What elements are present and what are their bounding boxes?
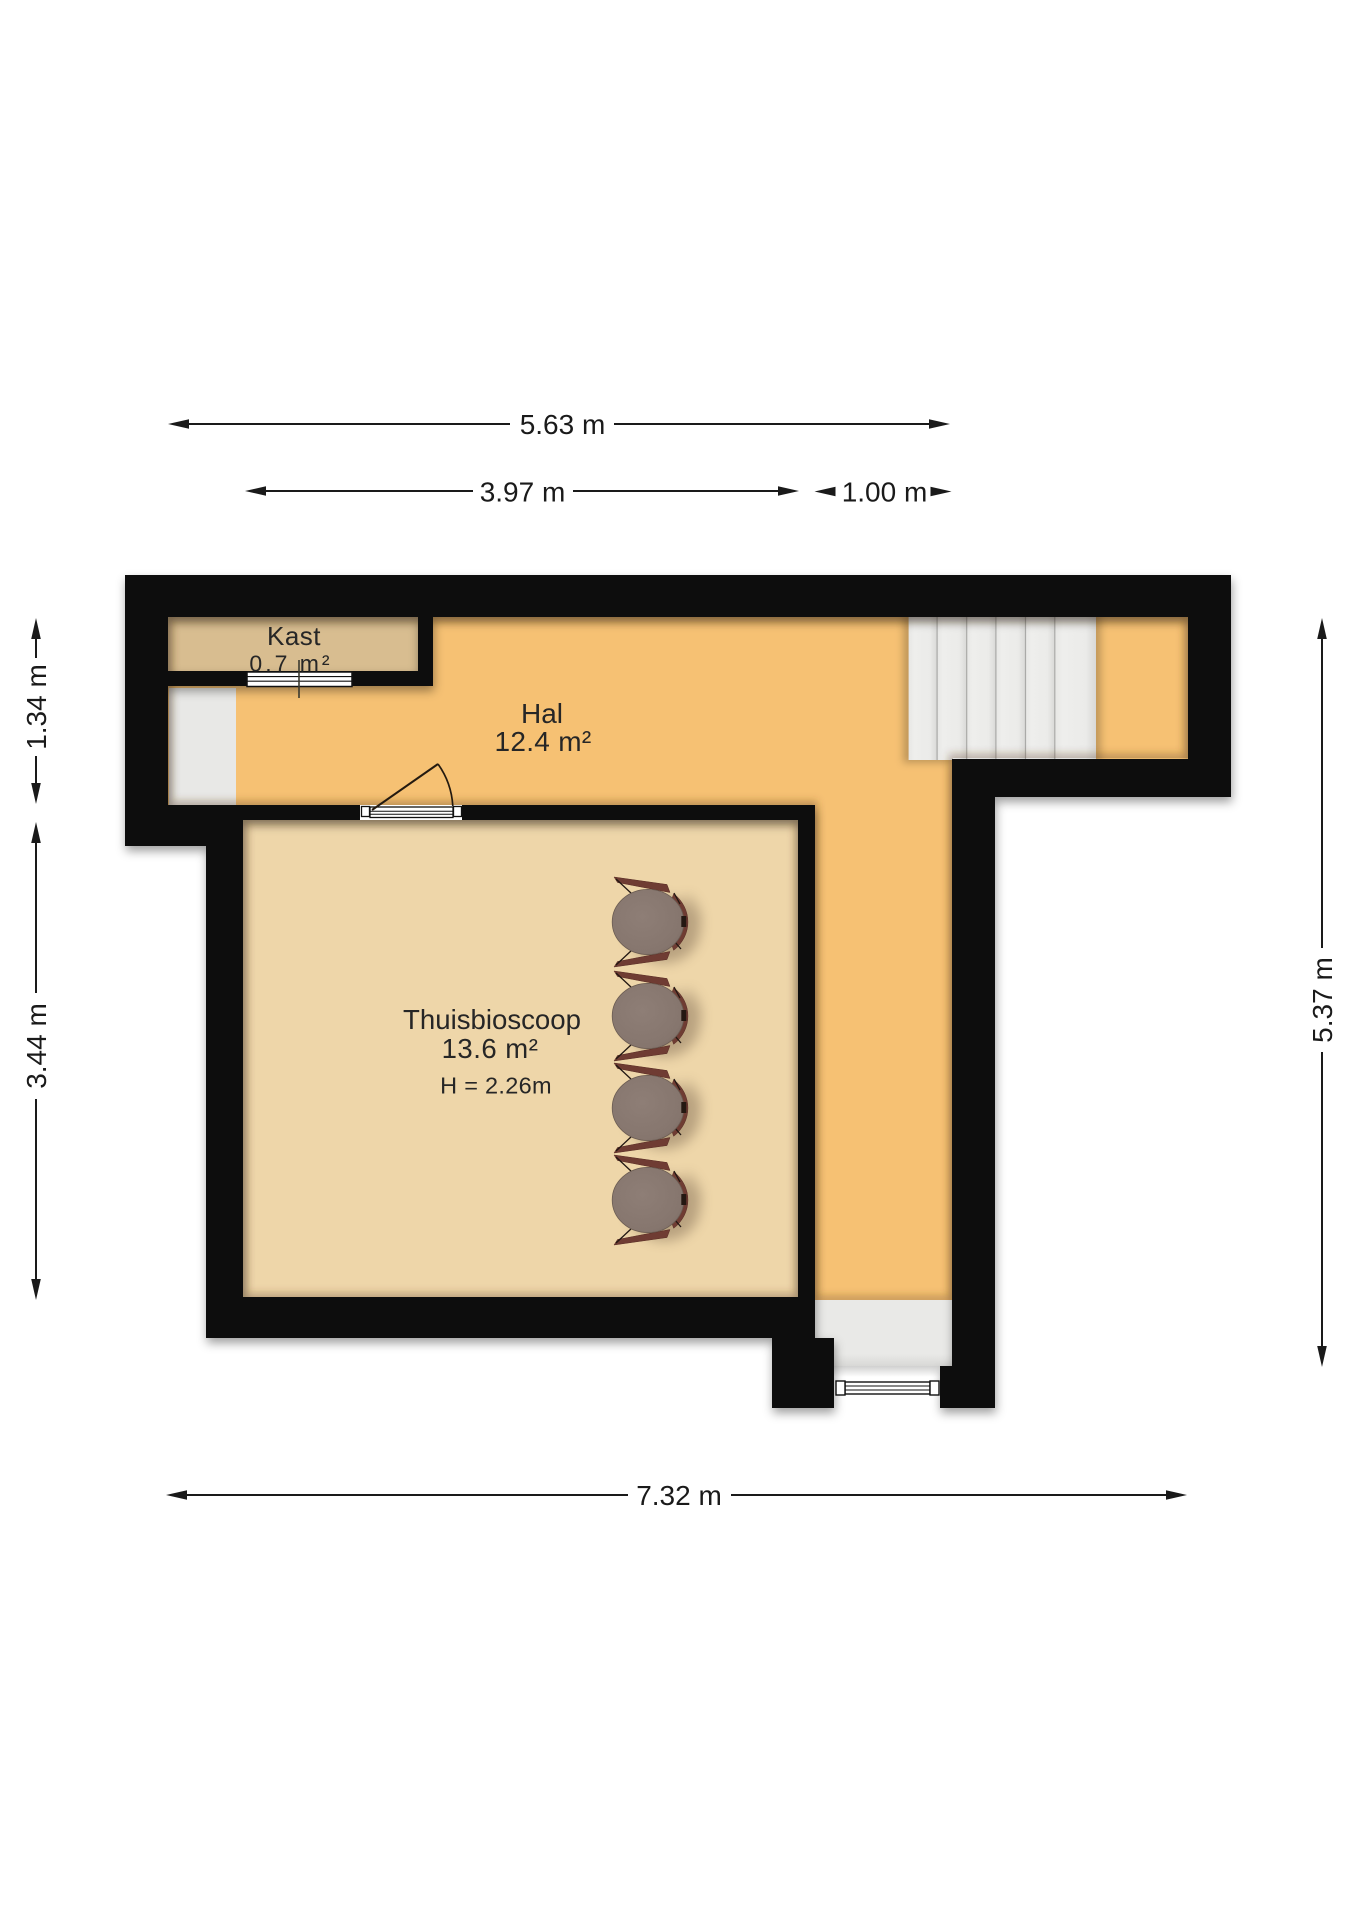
svg-text:1.00 m: 1.00 m bbox=[842, 477, 928, 508]
svg-text:Thuisbioscoop: Thuisbioscoop bbox=[403, 1004, 581, 1035]
svg-text:1.34 m: 1.34 m bbox=[21, 664, 52, 750]
svg-text:3.44 m: 3.44 m bbox=[21, 1003, 52, 1089]
svg-text:H = 2.26m: H = 2.26m bbox=[440, 1073, 552, 1099]
svg-text:5.37 m: 5.37 m bbox=[1307, 957, 1338, 1043]
svg-text:Kast: Kast bbox=[267, 621, 321, 651]
svg-text:0.7 m²: 0.7 m² bbox=[249, 651, 332, 677]
svg-text:12.4 m²: 12.4 m² bbox=[494, 726, 591, 757]
svg-text:7.32 m: 7.32 m bbox=[636, 1480, 722, 1511]
svg-text:13.6 m²: 13.6 m² bbox=[442, 1033, 539, 1064]
svg-text:Hal: Hal bbox=[521, 698, 563, 729]
svg-text:3.97 m: 3.97 m bbox=[480, 477, 566, 508]
svg-text:5.63 m: 5.63 m bbox=[520, 409, 606, 440]
